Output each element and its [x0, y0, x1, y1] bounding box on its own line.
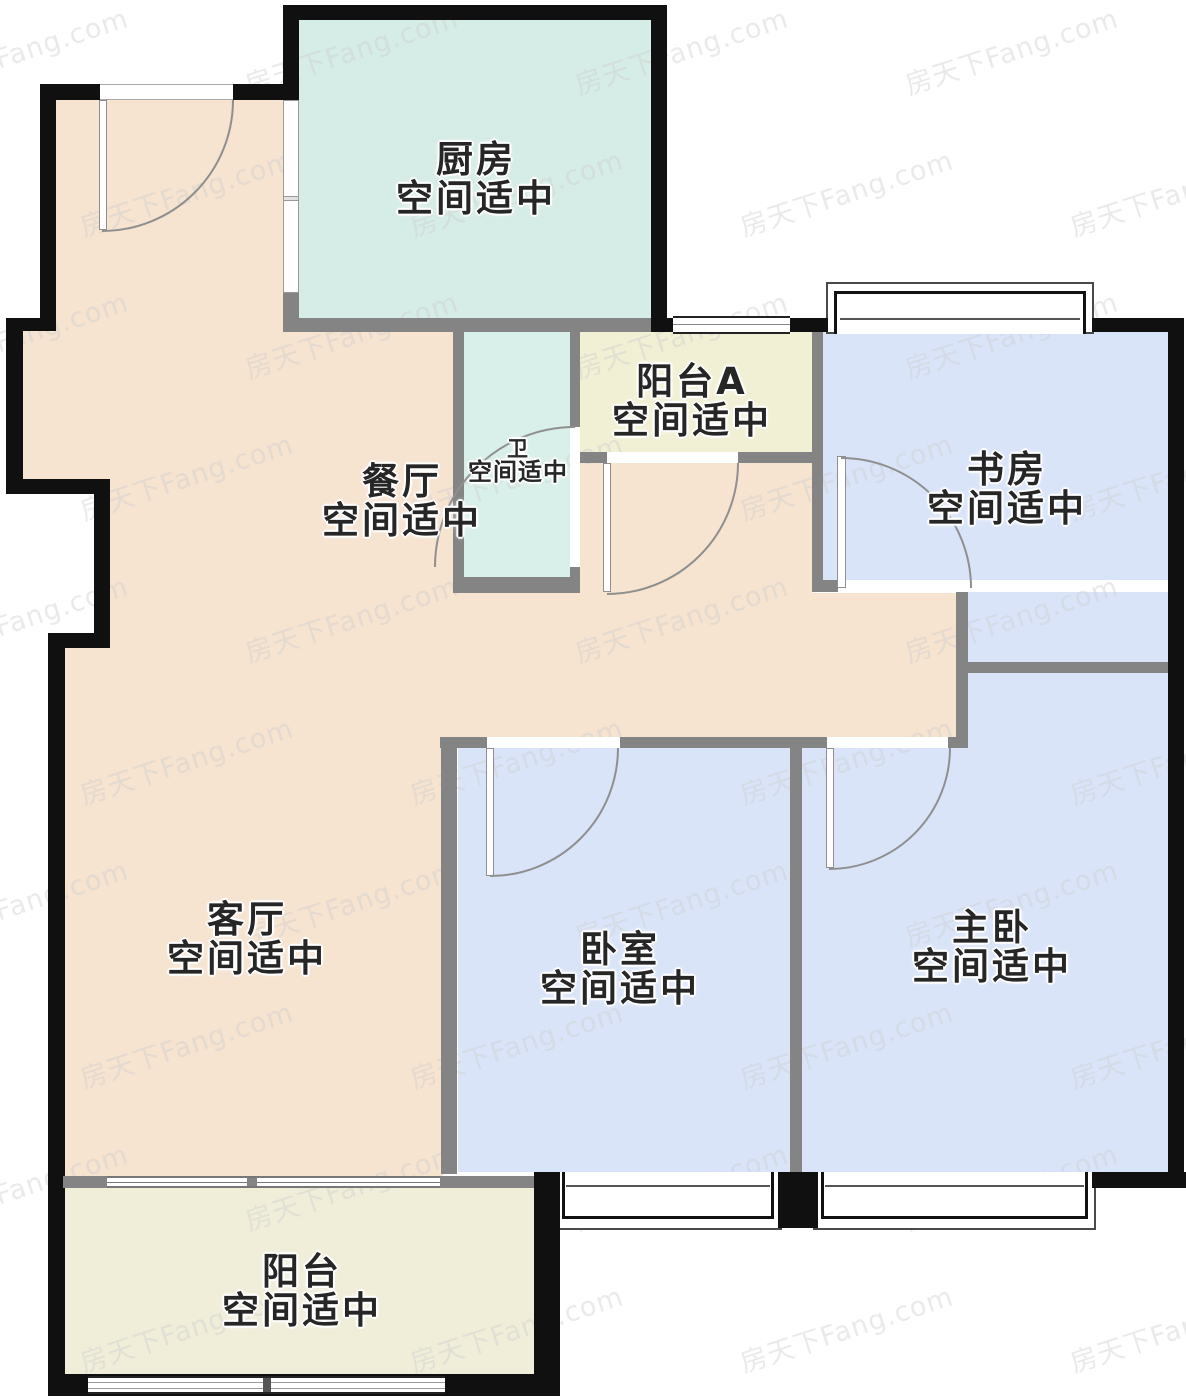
slider-track-line — [107, 1182, 440, 1183]
exterior-wall — [1168, 318, 1184, 1188]
exterior-wall — [48, 633, 65, 1396]
exterior-wall — [283, 5, 667, 20]
partition-wall-bath-right — [570, 332, 580, 427]
partition-wall-master-top — [968, 662, 1168, 673]
study-bay-window-frame — [834, 291, 1086, 334]
room-status: 空间适中 — [396, 179, 556, 218]
room-name: 主卧 — [912, 908, 1072, 947]
watermark: 房天下Fang.com — [734, 139, 957, 245]
room-label-bedroom: 卧室 空间适中 — [540, 930, 700, 1008]
room-label-kitchen: 厨房 空间适中 — [396, 140, 556, 218]
study-floor-2 — [968, 592, 1168, 662]
exterior-wall — [790, 318, 828, 332]
master-door-leaf — [826, 748, 834, 868]
slider-divider — [284, 196, 298, 201]
room-name: 餐厅 — [322, 462, 482, 501]
slider-divider — [247, 1178, 257, 1186]
partition-wall — [948, 737, 968, 748]
watermark: 房天下Fang.com — [1064, 1275, 1186, 1381]
bedroom-bay-window-frame — [562, 1172, 774, 1219]
dining-floor — [23, 331, 453, 479]
room-label-dining: 餐厅 空间适中 — [322, 462, 482, 540]
watermark: 房天下Fang.com — [734, 1275, 957, 1381]
window-glass-line — [673, 324, 790, 325]
partition-wall-study-left — [812, 332, 823, 592]
exterior-wall — [40, 84, 56, 330]
entry-door-opening — [100, 84, 233, 100]
entry-door-leaf — [99, 100, 107, 230]
exterior-wall — [778, 1172, 818, 1228]
bedroom-door-opening — [487, 737, 620, 748]
room-status: 空间适中 — [612, 401, 772, 440]
kitchen-sliding-door — [283, 100, 299, 293]
master-bedroom-floor-upper — [968, 673, 1168, 748]
window-glass-line — [566, 1185, 770, 1187]
exterior-wall — [1092, 318, 1184, 332]
room-status: 空间适中 — [322, 501, 482, 540]
room-label-bathroom: 卫 空间适中 — [468, 438, 568, 486]
partition-wall — [812, 580, 838, 592]
study-door-opening — [838, 580, 975, 592]
room-status: 空间适中 — [167, 939, 327, 978]
room-name: 卫 — [468, 438, 568, 460]
living-balcony-slider — [107, 1176, 440, 1188]
hallway-floor-2 — [580, 463, 812, 593]
window-glass-line — [825, 1185, 1084, 1187]
floorplan: 房天下Fang.com房天下Fang.com房天下Fang.com房天下Fang… — [0, 0, 1186, 1400]
partition-wall — [578, 452, 607, 463]
bathroom-door-opening — [570, 427, 580, 567]
exterior-wall — [283, 5, 299, 100]
exterior-wall — [534, 1172, 560, 1396]
balcony-window — [88, 1376, 445, 1394]
dining-entry-floor — [56, 100, 283, 332]
room-name: 卧室 — [540, 930, 700, 969]
exterior-wall — [6, 318, 23, 494]
watermark: 房天下Fang.com — [1064, 139, 1186, 245]
partition-wall — [283, 293, 299, 332]
room-name: 厨房 — [396, 140, 556, 179]
room-label-master-bedroom: 主卧 空间适中 — [912, 908, 1072, 986]
room-status: 空间适中 — [540, 969, 700, 1008]
exterior-wall — [651, 318, 675, 332]
exterior-wall — [651, 5, 667, 318]
partition-wall — [63, 1176, 107, 1188]
partition-wall-bedroom-master — [790, 737, 802, 1172]
balcony-a-door-opening — [607, 452, 738, 463]
room-name: 书房 — [927, 450, 1087, 489]
master-bay-window-frame — [821, 1172, 1088, 1219]
balcony-a-door-leaf — [603, 463, 611, 592]
room-name: 客厅 — [167, 900, 327, 939]
room-status: 空间适中 — [468, 460, 568, 485]
room-status: 空间适中 — [912, 947, 1072, 986]
exterior-wall — [94, 479, 110, 648]
partition-wall-living-bedroom — [441, 737, 457, 1174]
partition-wall-bath-bottom — [453, 577, 580, 593]
window-mullion — [263, 1378, 271, 1392]
partition-wall — [738, 452, 812, 463]
bedroom-door-leaf — [486, 748, 494, 876]
balcony-a-window — [673, 316, 790, 334]
partition-wall-hall-right — [956, 584, 968, 748]
partition-wall — [440, 1176, 534, 1188]
study-door-leaf — [837, 456, 846, 588]
room-label-balcony-a: 阳台A 空间适中 — [612, 362, 772, 440]
master-door-opening — [827, 737, 948, 748]
room-status: 空间适中 — [927, 489, 1087, 528]
room-name: 阳台A — [612, 362, 772, 401]
room-label-balcony: 阳台 空间适中 — [222, 1252, 382, 1330]
room-name: 阳台 — [222, 1252, 382, 1291]
window-glass-line — [840, 318, 1080, 320]
partition-wall-kitchen-bottom — [299, 318, 651, 332]
room-label-study: 书房 空间适中 — [927, 450, 1087, 528]
hallway-floor — [443, 593, 956, 737]
room-label-living: 客厅 空间适中 — [167, 900, 327, 978]
watermark: 房天下Fang.com — [899, 0, 1122, 102]
room-status: 空间适中 — [222, 1291, 382, 1330]
